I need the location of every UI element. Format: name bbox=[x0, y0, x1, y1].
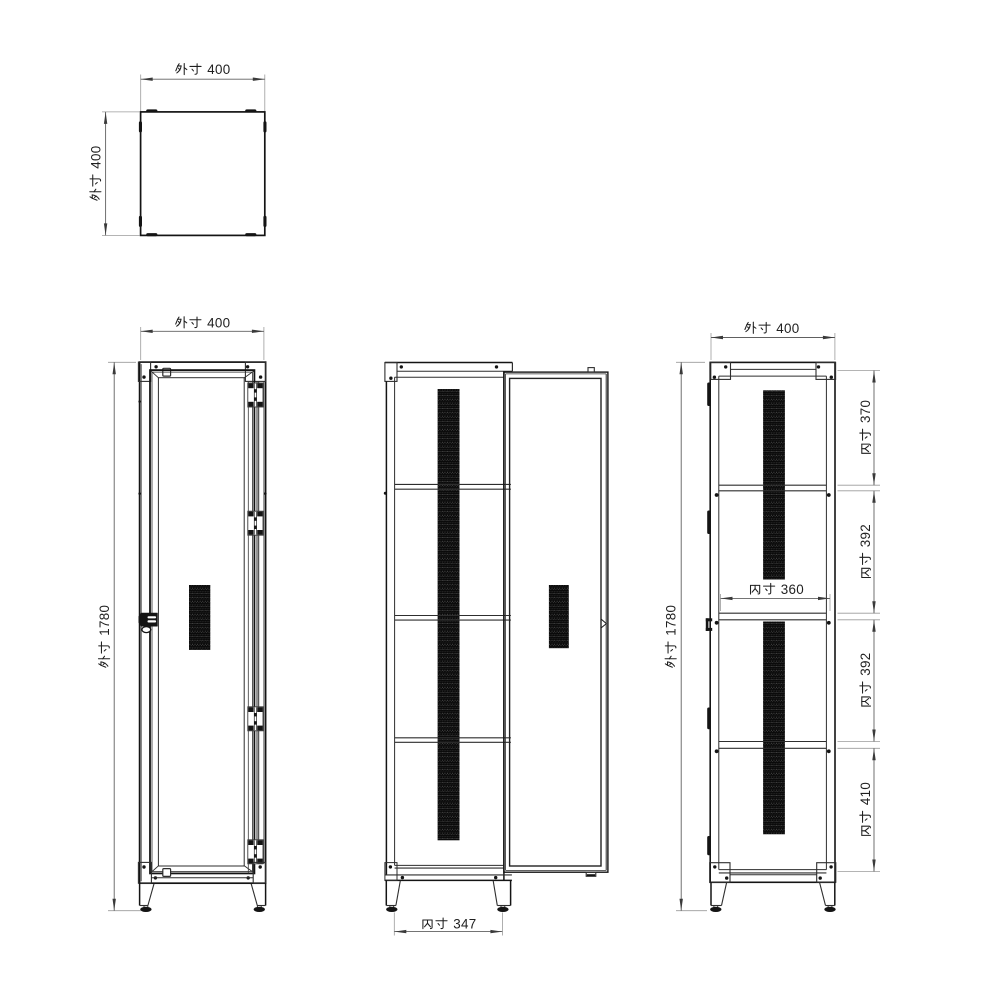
svg-text:400: 400 bbox=[207, 315, 230, 330]
svg-text:400: 400 bbox=[776, 321, 799, 336]
svg-text:360: 360 bbox=[781, 582, 804, 597]
svg-text:410: 410 bbox=[858, 782, 873, 805]
svg-text:392: 392 bbox=[858, 524, 873, 547]
svg-text:400: 400 bbox=[207, 62, 230, 77]
svg-text:1780: 1780 bbox=[97, 605, 112, 636]
svg-text:347: 347 bbox=[453, 916, 476, 931]
svg-text:1780: 1780 bbox=[664, 605, 679, 636]
svg-text:392: 392 bbox=[858, 653, 873, 676]
svg-text:400: 400 bbox=[88, 146, 103, 169]
svg-text:370: 370 bbox=[858, 400, 873, 423]
